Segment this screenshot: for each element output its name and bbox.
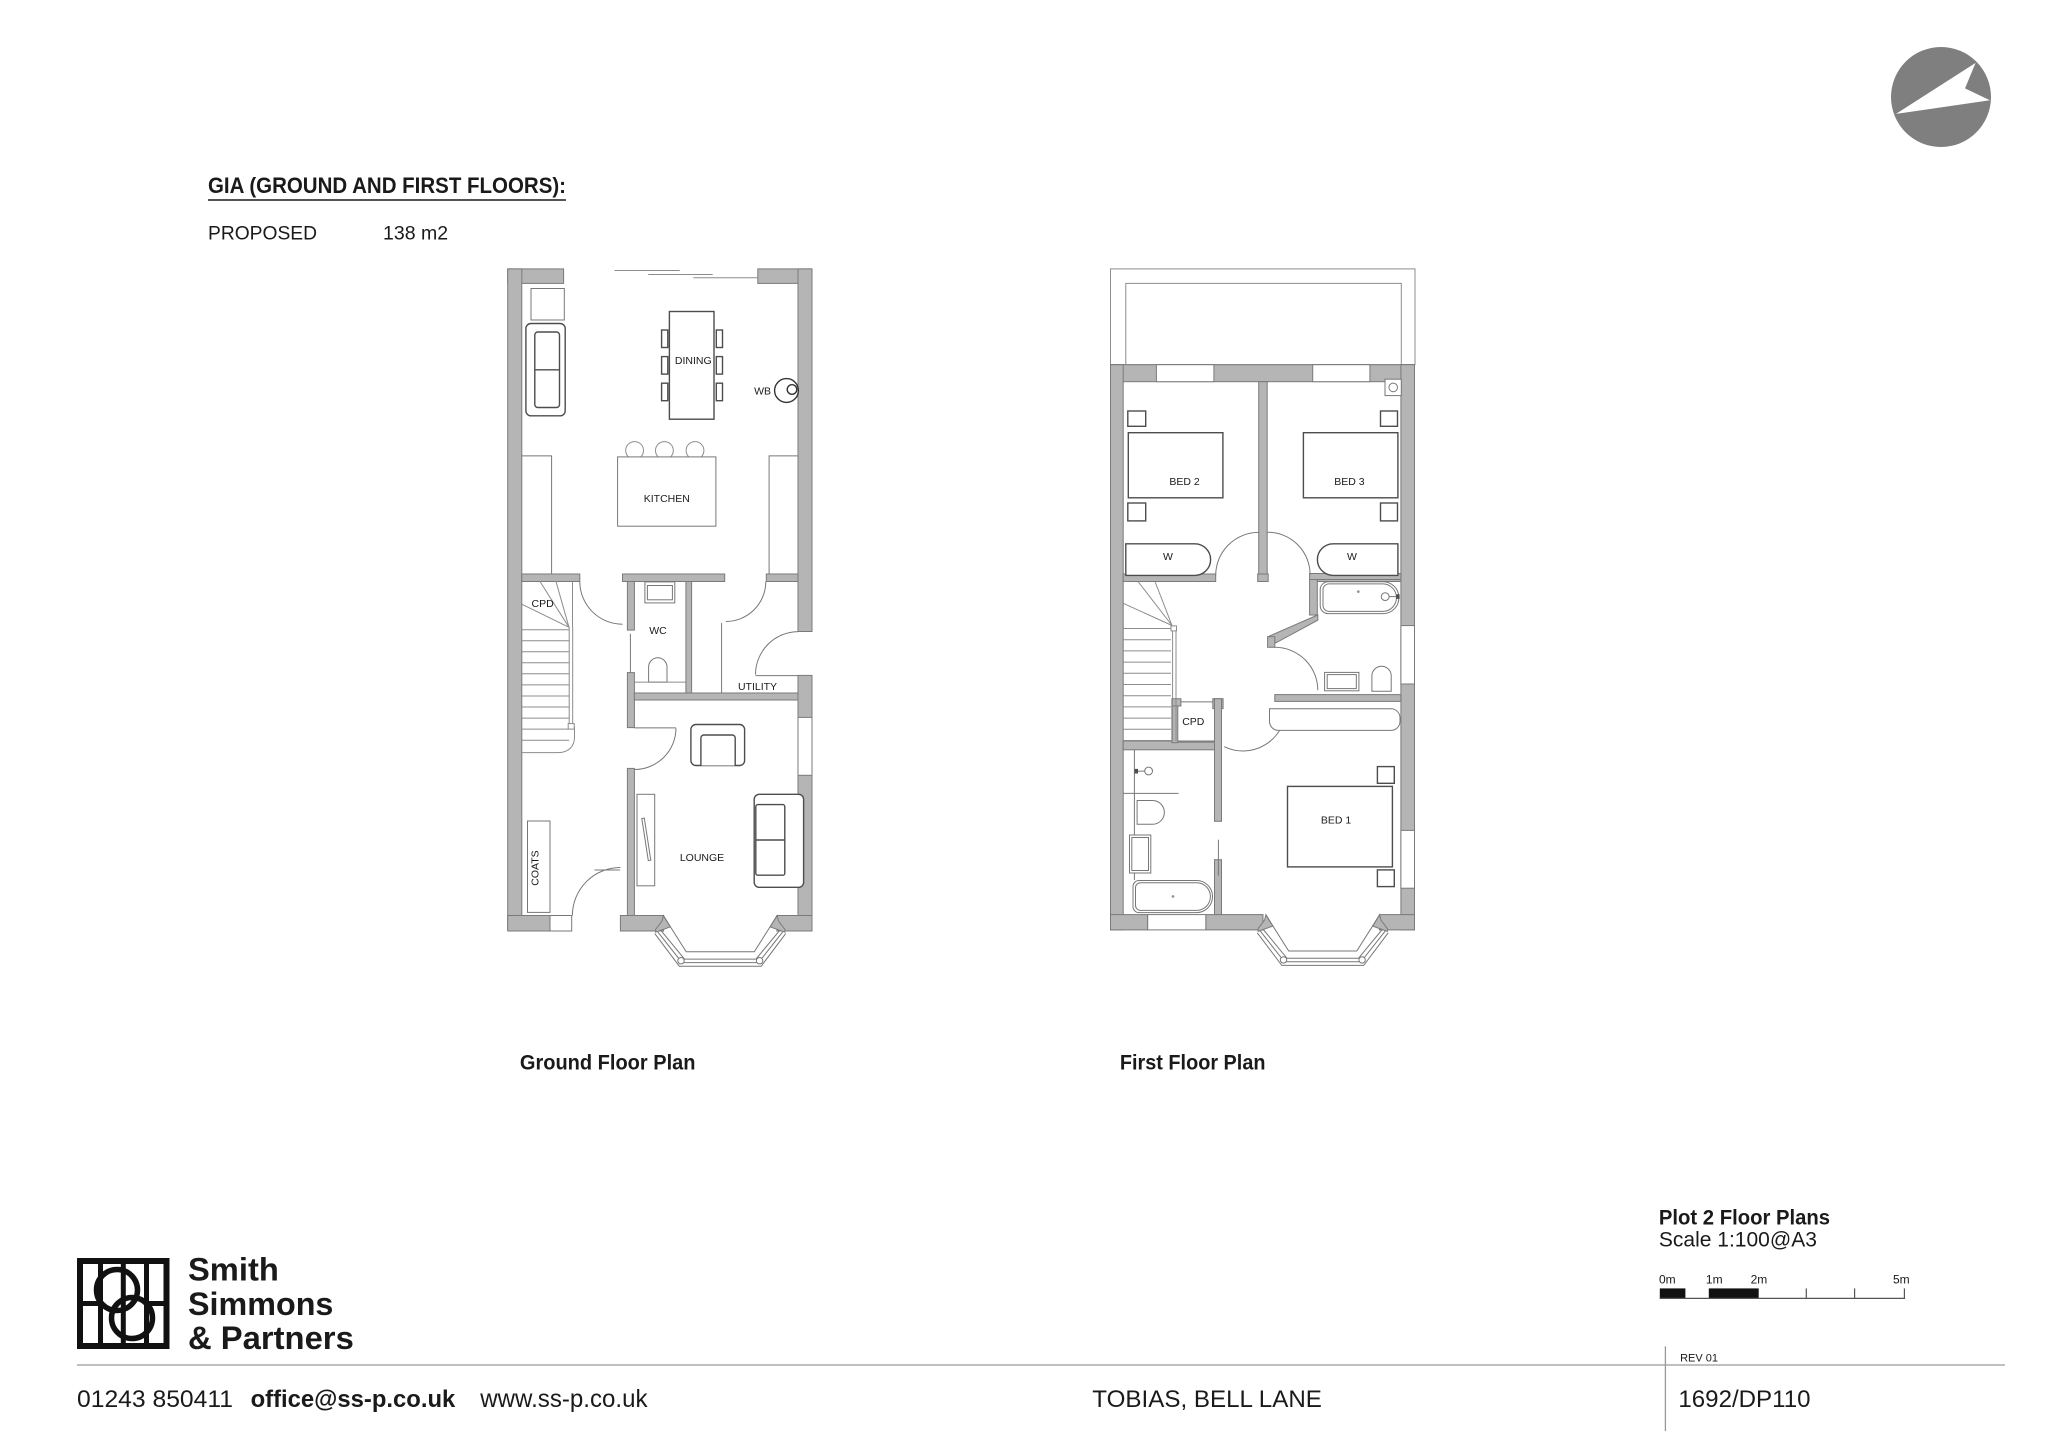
svg-text:CPD: CPD [532, 598, 555, 610]
svg-text:138 m2: 138 m2 [383, 223, 448, 245]
svg-text:COATS: COATS [530, 850, 542, 885]
svg-text:W: W [1163, 551, 1173, 563]
svg-text:CPD: CPD [1182, 716, 1205, 728]
svg-text:01243 850411: 01243 850411 [77, 1386, 233, 1413]
svg-text:WC: WC [649, 625, 667, 637]
svg-text:PROPOSED: PROPOSED [208, 224, 317, 245]
svg-text:W: W [1347, 551, 1357, 563]
svg-text:1692/DP110: 1692/DP110 [1678, 1386, 1810, 1413]
svg-text:www.ss-p.co.uk: www.ss-p.co.uk [479, 1385, 648, 1413]
svg-text:TOBIAS, BELL LANE: TOBIAS, BELL LANE [1092, 1386, 1322, 1413]
svg-text:UTILITY: UTILITY [738, 681, 777, 693]
svg-text:Plot 2 Floor Plans: Plot 2 Floor Plans [1659, 1207, 1830, 1230]
svg-text:GIA (GROUND AND FIRST FLOORS):: GIA (GROUND AND FIRST FLOORS): [208, 173, 566, 198]
svg-text:DINING: DINING [675, 355, 712, 367]
svg-text:Simmons: Simmons [188, 1286, 333, 1322]
svg-text:office@ss-p.co.uk: office@ss-p.co.uk [251, 1386, 456, 1413]
svg-text:1m: 1m [1706, 1272, 1723, 1286]
svg-text:REV 01: REV 01 [1680, 1353, 1718, 1365]
svg-text:BED 3: BED 3 [1334, 476, 1365, 488]
svg-text:5m: 5m [1893, 1272, 1910, 1286]
svg-text:Ground Floor Plan: Ground Floor Plan [520, 1051, 696, 1075]
svg-text:& Partners: & Partners [188, 1320, 354, 1356]
svg-text:BED 2: BED 2 [1169, 476, 1200, 488]
svg-text:BED 1: BED 1 [1321, 815, 1352, 827]
svg-text:KITCHEN: KITCHEN [644, 493, 690, 505]
svg-text:First Floor Plan: First Floor Plan [1120, 1051, 1266, 1075]
svg-text:2m: 2m [1751, 1272, 1768, 1286]
svg-text:LOUNGE: LOUNGE [680, 852, 724, 864]
svg-text:Smith: Smith [188, 1252, 279, 1288]
svg-text:WB: WB [754, 385, 771, 397]
svg-text:Scale 1:100@A3: Scale 1:100@A3 [1659, 1228, 1817, 1251]
svg-text:0m: 0m [1659, 1272, 1676, 1286]
